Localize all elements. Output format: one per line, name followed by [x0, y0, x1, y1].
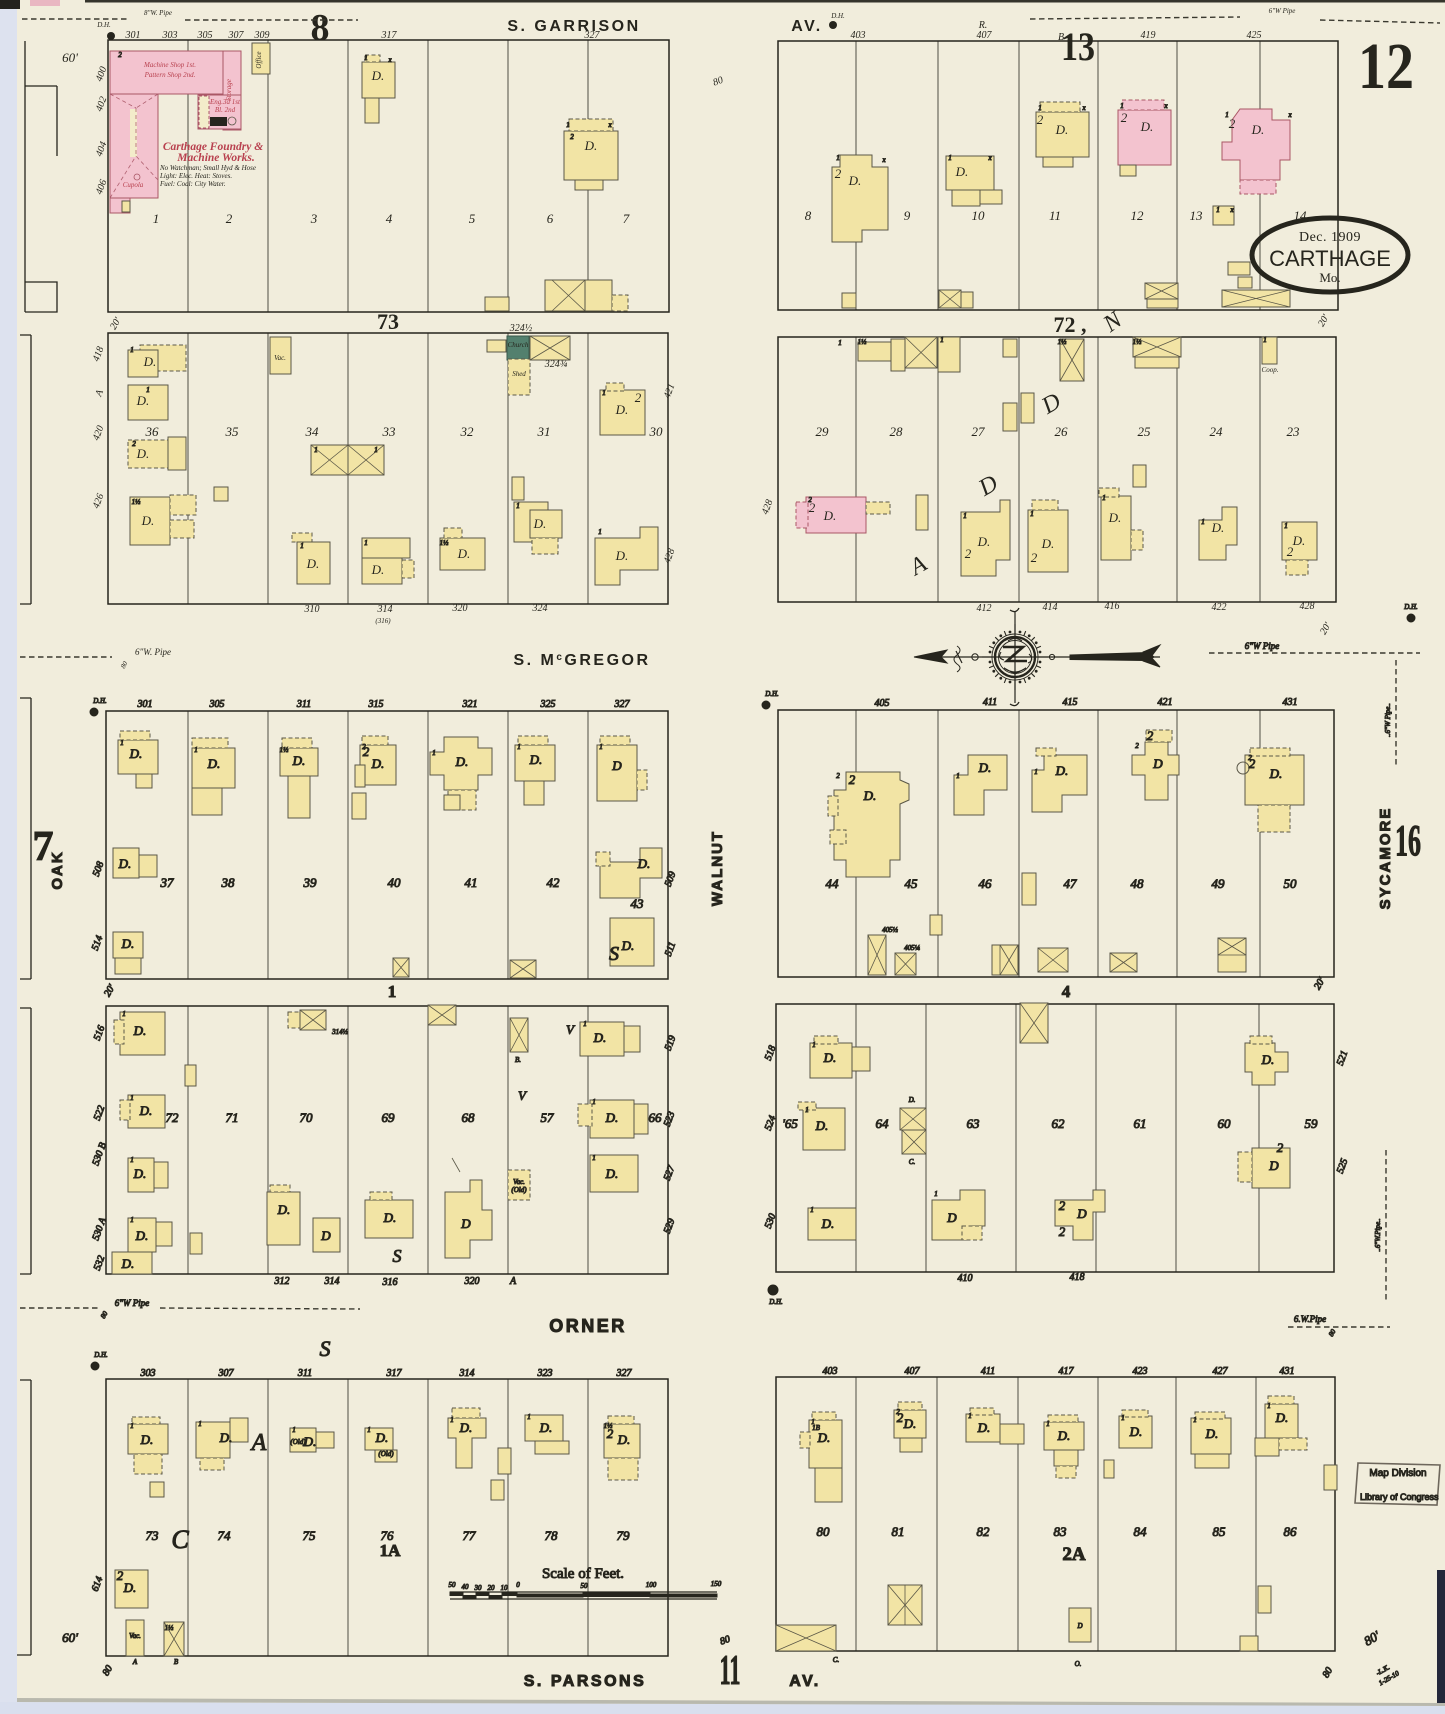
svg-text:301: 301: [125, 30, 141, 41]
svg-text:27: 27: [972, 424, 986, 439]
svg-text:403: 403: [851, 30, 866, 41]
svg-text:D.: D.: [1292, 533, 1306, 548]
svg-text:Church: Church: [508, 341, 529, 349]
svg-text:39: 39: [303, 875, 318, 890]
svg-text:3: 3: [310, 211, 318, 226]
svg-text:1: 1: [130, 1422, 134, 1430]
svg-text:D.: D.: [371, 756, 385, 771]
svg-text:1: 1: [1046, 1420, 1050, 1428]
svg-text:410: 410: [958, 1273, 973, 1284]
svg-text:D.: D.: [977, 1420, 991, 1435]
svg-text:6"W Pipe: 6"W Pipe: [1245, 641, 1280, 651]
svg-text:30: 30: [649, 424, 664, 439]
svg-text:2: 2: [1248, 754, 1252, 762]
svg-text:B: B: [174, 1658, 179, 1666]
svg-text:150: 150: [711, 1580, 722, 1588]
svg-text:D.: D.: [371, 68, 385, 83]
svg-text:323: 323: [537, 1368, 553, 1379]
svg-text:D.: D.: [459, 1420, 473, 1435]
svg-text:431: 431: [1280, 1366, 1295, 1377]
svg-text:2: 2: [835, 166, 842, 181]
svg-text:1: 1: [130, 1156, 134, 1164]
svg-text:D.: D.: [136, 446, 150, 461]
svg-text:45: 45: [905, 876, 919, 891]
svg-text:416: 416: [1105, 601, 1120, 612]
svg-text:42: 42: [547, 875, 561, 890]
svg-text:Light: Elec. Heat: Stoves.: Light: Elec. Heat: Stoves.: [159, 172, 232, 180]
svg-text:1: 1: [948, 154, 952, 162]
svg-text:80: 80: [817, 1524, 831, 1539]
svg-text:2: 2: [1059, 1198, 1066, 1213]
svg-text:1: 1: [1201, 518, 1205, 526]
svg-text:D.: D.: [1261, 1052, 1275, 1067]
svg-text:403: 403: [823, 1366, 838, 1377]
svg-text:CARTHAGE: CARTHAGE: [1269, 246, 1391, 271]
svg-text:1: 1: [292, 1426, 296, 1434]
svg-text:82: 82: [977, 1524, 991, 1539]
svg-text:418: 418: [1070, 1272, 1085, 1283]
svg-text:D.: D.: [277, 1202, 291, 1217]
svg-text:1½: 1½: [165, 1624, 175, 1632]
svg-text:B: B: [1058, 32, 1064, 43]
svg-text:1: 1: [566, 121, 570, 129]
svg-text:421: 421: [1158, 697, 1173, 708]
svg-text:6"W. Pipe: 6"W. Pipe: [135, 647, 171, 657]
svg-text:D.: D.: [615, 548, 629, 563]
svg-text:1: 1: [968, 1412, 972, 1420]
svg-text:50: 50: [1284, 876, 1298, 891]
svg-text:427: 427: [1213, 1366, 1229, 1377]
svg-text:D.: D.: [207, 756, 221, 771]
svg-text:310: 310: [304, 604, 320, 615]
svg-text:D.: D.: [615, 402, 629, 417]
svg-text:431: 431: [1283, 697, 1298, 708]
svg-text:307: 307: [218, 1368, 235, 1379]
svg-text:D.: D.: [533, 516, 547, 531]
svg-text:63: 63: [967, 1116, 981, 1131]
svg-text:D.: D.: [903, 1416, 917, 1431]
svg-text:48: 48: [1131, 876, 1145, 891]
svg-text:34: 34: [305, 424, 320, 439]
svg-text:S. McGREGOR: S. McGREGOR: [513, 652, 650, 669]
svg-text:1: 1: [1038, 104, 1042, 112]
svg-text:315: 315: [368, 699, 384, 710]
svg-text:1: 1: [146, 386, 150, 394]
svg-text:Bl. 2nd: Bl. 2nd: [215, 106, 236, 114]
svg-text:1: 1: [314, 446, 318, 454]
svg-text:407: 407: [977, 30, 993, 41]
svg-text:D.: D.: [219, 1430, 233, 1445]
svg-text:16: 16: [1395, 816, 1421, 865]
svg-text:D.: D.: [455, 754, 469, 769]
svg-text:1: 1: [374, 446, 378, 454]
svg-text:2: 2: [1287, 544, 1294, 559]
svg-text:2: 2: [226, 211, 233, 226]
svg-text:4: 4: [1062, 982, 1071, 1001]
svg-text:81: 81: [892, 1524, 905, 1539]
svg-text:1: 1: [194, 746, 198, 754]
svg-text:2: 2: [808, 496, 812, 504]
svg-text:2: 2: [1277, 1140, 1284, 1155]
svg-text:1½: 1½: [132, 498, 142, 506]
svg-text:33: 33: [382, 424, 397, 439]
svg-text:D: D: [460, 1216, 471, 1231]
svg-text:D.: D.: [1108, 510, 1122, 525]
svg-text:Library of Congress: Library of Congress: [1360, 1492, 1439, 1502]
svg-text:1: 1: [300, 542, 304, 550]
svg-text:24: 24: [1210, 424, 1224, 439]
svg-text:S. GARRISON: S. GARRISON: [507, 18, 640, 35]
svg-text:13: 13: [1061, 24, 1095, 69]
svg-text:423: 423: [1133, 1366, 1148, 1377]
svg-text:D.: D.: [140, 1432, 154, 1447]
svg-text:324½: 324½: [509, 323, 533, 334]
svg-text:8: 8: [311, 7, 330, 49]
svg-text:73: 73: [146, 1528, 160, 1543]
svg-text:No Watchman; Small Hyd & Hose: No Watchman; Small Hyd & Hose: [159, 164, 256, 172]
svg-text:D.: D.: [1055, 763, 1069, 778]
svg-text:60': 60': [62, 1630, 78, 1645]
svg-text:Scale of Feet.: Scale of Feet.: [542, 1566, 624, 1582]
svg-text:40: 40: [388, 875, 402, 890]
svg-text:AV.: AV.: [789, 1673, 821, 1690]
svg-text:309: 309: [254, 30, 270, 41]
svg-text:6"W Pipe: 6"W Pipe: [1269, 7, 1296, 15]
svg-text:79: 79: [617, 1528, 631, 1543]
svg-text:1: 1: [592, 1098, 596, 1106]
svg-text:2: 2: [849, 772, 856, 787]
svg-text:D.: D.: [539, 1420, 553, 1435]
svg-text:23: 23: [1287, 424, 1301, 439]
svg-text:1: 1: [1120, 102, 1124, 110]
svg-text:100: 100: [646, 1581, 657, 1589]
svg-text:311: 311: [297, 1368, 312, 1379]
svg-text:Mo.: Mo.: [1319, 270, 1340, 285]
svg-text:312: 312: [274, 1276, 290, 1287]
svg-text:(Old): (Old): [511, 1186, 527, 1194]
svg-text:1½: 1½: [1133, 338, 1143, 346]
svg-text:28: 28: [890, 424, 904, 439]
svg-text:12: 12: [1131, 208, 1145, 223]
svg-text:32: 32: [460, 424, 475, 439]
svg-text:1: 1: [1284, 522, 1288, 530]
svg-text:29: 29: [816, 424, 830, 439]
svg-text:62: 62: [1052, 1116, 1066, 1131]
svg-text:D.H.: D.H.: [1403, 603, 1418, 611]
svg-text:1: 1: [1216, 206, 1220, 214]
svg-text:D.: D.: [121, 1256, 135, 1271]
svg-text:73: 73: [377, 309, 399, 334]
svg-text:36: 36: [145, 424, 160, 439]
svg-text:6"W Pipe: 6"W Pipe: [115, 1298, 150, 1308]
svg-text:D.: D.: [823, 508, 837, 523]
svg-text:D.: D.: [133, 1023, 147, 1038]
svg-text:1½: 1½: [604, 1422, 614, 1430]
svg-text:20: 20: [488, 1584, 496, 1592]
svg-text:A: A: [132, 1658, 138, 1666]
svg-text:64: 64: [876, 1116, 890, 1131]
svg-text:6: 6: [547, 211, 554, 226]
svg-text:26: 26: [1055, 424, 1069, 439]
svg-text:1: 1: [388, 982, 397, 1001]
svg-text:D.: D.: [375, 1430, 389, 1445]
svg-text:422: 422: [1212, 602, 1227, 613]
svg-text:1: 1: [130, 1216, 134, 1224]
svg-text:Office: Office: [255, 51, 263, 68]
svg-text:327: 327: [616, 1368, 633, 1379]
svg-text:2: 2: [1031, 550, 1038, 565]
svg-text:11: 11: [720, 1648, 741, 1694]
svg-text:10: 10: [972, 208, 986, 223]
svg-text:405: 405: [875, 698, 890, 709]
svg-text:37: 37: [160, 875, 175, 890]
svg-text:8"W. Pipe: 8"W. Pipe: [144, 9, 172, 17]
svg-text:0: 0: [516, 1581, 520, 1589]
svg-text:1: 1: [805, 1106, 809, 1114]
svg-text:321: 321: [462, 699, 478, 710]
svg-text:1: 1: [122, 1010, 126, 1018]
svg-text:2: 2: [635, 390, 642, 405]
svg-text:2: 2: [896, 1408, 900, 1416]
svg-text:2: 2: [1121, 110, 1128, 125]
svg-text:D.: D.: [129, 746, 143, 761]
svg-text:S: S: [393, 1246, 402, 1266]
svg-text:1: 1: [153, 211, 160, 226]
svg-text:405½: 405½: [882, 926, 899, 934]
svg-text:D.: D.: [306, 556, 320, 571]
svg-text:1½: 1½: [1058, 338, 1068, 346]
svg-text:2: 2: [117, 1568, 124, 1583]
svg-text:307: 307: [228, 30, 245, 41]
svg-text:D.: D.: [1057, 1428, 1071, 1443]
svg-text:1: 1: [1121, 1414, 1125, 1422]
svg-text:ORNER: ORNER: [549, 1316, 627, 1336]
svg-text:1: 1: [592, 1154, 596, 1162]
svg-text:Cupola: Cupola: [123, 181, 144, 189]
svg-text:4: 4: [386, 211, 393, 226]
svg-text:D.: D.: [978, 760, 992, 775]
svg-text:5: 5: [469, 211, 476, 226]
svg-text:316: 316: [382, 1277, 398, 1288]
svg-text:1: 1: [432, 749, 436, 757]
svg-text:1: 1: [130, 346, 134, 354]
svg-text:1: 1: [940, 336, 944, 344]
svg-text:311: 311: [296, 699, 311, 710]
svg-text:301: 301: [137, 699, 153, 710]
svg-text:10: 10: [501, 1584, 509, 1592]
svg-text:1: 1: [602, 389, 606, 397]
svg-text:1: 1: [1030, 510, 1034, 518]
svg-text:69: 69: [382, 1110, 396, 1125]
svg-text:1½: 1½: [858, 338, 868, 346]
svg-text:D: D: [1268, 1158, 1279, 1173]
svg-text:D: D: [1076, 1622, 1082, 1630]
svg-text:85: 85: [1213, 1524, 1227, 1539]
svg-text:Vac.: Vac.: [129, 1632, 141, 1640]
svg-text:1: 1: [838, 339, 842, 347]
svg-text:D.: D.: [817, 1430, 831, 1445]
svg-text:2: 2: [1147, 728, 1154, 743]
svg-text:327: 327: [584, 30, 601, 41]
svg-text:8: 8: [805, 208, 812, 223]
svg-text:Machine Shop 1st.: Machine Shop 1st.: [143, 61, 196, 69]
svg-text:D.: D.: [605, 1110, 619, 1125]
svg-text:57: 57: [541, 1110, 555, 1125]
svg-text:2A: 2A: [1062, 1544, 1086, 1565]
svg-text:2: 2: [1135, 742, 1139, 750]
svg-text:303: 303: [140, 1368, 156, 1379]
svg-text:49: 49: [1212, 876, 1226, 891]
svg-text:D.: D.: [1251, 122, 1265, 137]
svg-text:D.: D.: [121, 936, 135, 951]
svg-text:D.: D.: [136, 393, 150, 408]
svg-text:Machine Works.: Machine Works.: [176, 152, 255, 164]
svg-text:2: 2: [965, 546, 972, 561]
svg-text:D.H.: D.H.: [96, 21, 111, 29]
svg-text:D.: D.: [383, 1210, 397, 1225]
svg-text:44: 44: [826, 876, 840, 891]
svg-text:1: 1: [364, 54, 368, 62]
svg-text:1: 1: [1263, 336, 1267, 344]
svg-text:7: 7: [623, 211, 630, 226]
svg-text:D.: D.: [1211, 520, 1225, 535]
svg-text:(Old): (Old): [378, 1450, 394, 1458]
svg-text:D: D: [1152, 756, 1163, 771]
svg-text:D.: D.: [529, 752, 543, 767]
svg-text:D.: D.: [292, 753, 306, 768]
svg-text:2: 2: [836, 772, 840, 780]
svg-text:D: D: [1076, 1206, 1087, 1221]
svg-text:Shed: Shed: [512, 370, 526, 378]
svg-text:D.: D.: [1041, 536, 1055, 551]
svg-text:305: 305: [209, 699, 225, 710]
svg-text:305: 305: [197, 30, 213, 41]
svg-text:1: 1: [811, 1418, 815, 1426]
svg-text:25: 25: [1138, 424, 1152, 439]
svg-text:83: 83: [1054, 1524, 1068, 1539]
svg-text:61: 61: [1134, 1116, 1147, 1131]
svg-text:A: A: [250, 1430, 267, 1456]
svg-text:D.: D.: [823, 1050, 837, 1065]
svg-text:D.: D.: [133, 1166, 147, 1181]
svg-text:325: 325: [540, 699, 556, 710]
svg-text:D.: D.: [135, 1228, 149, 1243]
svg-text:2: 2: [362, 743, 366, 751]
svg-text:66: 66: [649, 1110, 663, 1125]
svg-text:(316): (316): [375, 617, 391, 625]
svg-text:317: 317: [386, 1368, 403, 1379]
svg-text:411: 411: [981, 1366, 995, 1377]
svg-text:D.: D.: [1129, 1424, 1143, 1439]
svg-text:D.: D.: [1275, 1410, 1289, 1425]
svg-text:35: 35: [225, 424, 240, 439]
svg-text:68: 68: [462, 1110, 476, 1125]
svg-text:D.: D.: [1055, 122, 1069, 137]
svg-text:1: 1: [583, 1020, 587, 1028]
svg-text:9: 9: [904, 208, 911, 223]
svg-text:59: 59: [1305, 1116, 1319, 1131]
svg-text:..6"W Pipe..: ..6"W Pipe..: [1384, 703, 1392, 737]
svg-text:B.: B.: [515, 1056, 521, 1064]
svg-text:70: 70: [300, 1110, 314, 1125]
svg-text:314: 314: [459, 1368, 475, 1379]
svg-text:2: 2: [132, 440, 136, 448]
svg-text:72: 72: [166, 1110, 180, 1125]
svg-text:D.: D.: [605, 1166, 619, 1181]
svg-text:60': 60': [62, 50, 78, 65]
svg-text:D.: D.: [821, 1216, 835, 1231]
svg-text:31: 31: [537, 424, 551, 439]
svg-text:74: 74: [218, 1528, 232, 1543]
svg-text:D.: D.: [621, 938, 635, 953]
svg-text:78: 78: [545, 1528, 559, 1543]
svg-text:38: 38: [221, 875, 236, 890]
svg-text:320: 320: [452, 603, 468, 614]
svg-text:D.: D.: [1140, 119, 1154, 134]
svg-text:30: 30: [474, 1584, 483, 1592]
svg-text:Pattern Shop 2nd.: Pattern Shop 2nd.: [144, 71, 196, 79]
svg-text:1: 1: [1102, 494, 1106, 502]
svg-text:13: 13: [1190, 208, 1204, 223]
svg-text:71: 71: [226, 1110, 239, 1125]
svg-text:D.: D.: [457, 546, 471, 561]
svg-text:1: 1: [364, 539, 368, 547]
svg-text:S: S: [609, 943, 619, 965]
svg-text:314: 314: [324, 1276, 340, 1287]
svg-text:D.: D.: [123, 1580, 137, 1595]
svg-text:303: 303: [162, 30, 178, 41]
svg-text:419: 419: [1141, 30, 1156, 41]
svg-text:46: 46: [979, 876, 993, 891]
svg-text:Fuel: Coal: City Water.: Fuel: Coal: City Water.: [159, 180, 226, 188]
svg-text:D.H.: D.H.: [764, 690, 779, 698]
svg-text:40: 40: [462, 1583, 470, 1591]
svg-text:O.: O.: [1075, 1660, 1082, 1668]
svg-text:407: 407: [905, 1366, 921, 1377]
svg-text:50: 50: [581, 1582, 589, 1590]
svg-text:2: 2: [1037, 112, 1044, 127]
svg-text:1: 1: [810, 1206, 814, 1214]
svg-text:405¼: 405¼: [904, 944, 921, 952]
svg-text:314½: 314½: [331, 1028, 349, 1036]
svg-text:324: 324: [532, 603, 548, 614]
svg-text:1½: 1½: [280, 746, 290, 754]
svg-text:D.: D.: [141, 513, 155, 528]
svg-text:1: 1: [516, 502, 520, 510]
svg-text:D.: D.: [118, 856, 132, 871]
svg-text:D.: D.: [977, 534, 991, 549]
svg-text:2: 2: [118, 51, 122, 59]
svg-text:314: 314: [377, 604, 393, 615]
svg-text:D.: D.: [617, 1432, 631, 1447]
svg-text:Eng.3d 1st: Eng.3d 1st: [209, 98, 241, 106]
svg-text:414: 414: [1043, 602, 1058, 613]
svg-text:1: 1: [934, 1190, 938, 1198]
svg-text:SYCAMORE: SYCAMORE: [1377, 807, 1394, 910]
svg-text:Map Division: Map Division: [1369, 1468, 1426, 1479]
svg-text:41: 41: [465, 875, 478, 890]
svg-text:D: D: [946, 1210, 957, 1225]
svg-text:S. PARSONS: S. PARSONS: [524, 1673, 647, 1690]
svg-text:D.: D.: [371, 562, 385, 577]
svg-text:320: 320: [464, 1276, 480, 1287]
svg-text:1: 1: [599, 743, 603, 751]
svg-text:1: 1: [367, 1426, 371, 1434]
svg-text:(Old): (Old): [290, 1438, 306, 1446]
svg-text:2: 2: [1229, 116, 1236, 131]
svg-text:1: 1: [450, 1416, 454, 1424]
svg-text:S: S: [320, 1336, 331, 1361]
